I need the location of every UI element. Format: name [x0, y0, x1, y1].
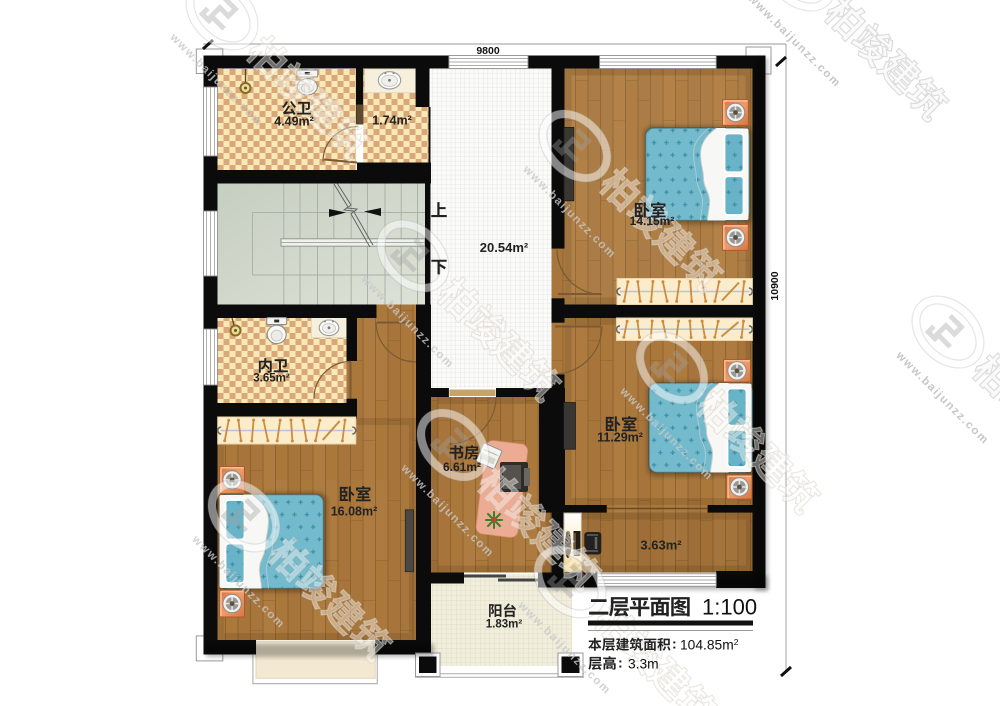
svg-text:20.54m²: 20.54m² — [480, 240, 529, 255]
svg-text:16.08m²: 16.08m² — [331, 505, 378, 519]
svg-text:1.74m²: 1.74m² — [372, 114, 412, 128]
svg-text:1:100: 1:100 — [702, 595, 757, 620]
svg-text:4.49m²: 4.49m² — [274, 115, 314, 129]
svg-text:14.15m²: 14.15m² — [630, 214, 675, 228]
svg-text:6.61m²: 6.61m² — [443, 460, 481, 474]
svg-text:104.85m2: 104.85m2 — [680, 637, 739, 653]
svg-text:10900: 10900 — [769, 271, 781, 300]
svg-text:3.3m: 3.3m — [628, 657, 659, 672]
svg-text:1.83m²: 1.83m² — [486, 619, 523, 631]
svg-text:11.29m²: 11.29m² — [597, 431, 643, 445]
svg-text:3.65m²: 3.65m² — [253, 373, 290, 385]
svg-text::: : — [618, 655, 623, 671]
svg-text::: : — [672, 636, 677, 652]
svg-text:3.63m²: 3.63m² — [640, 538, 682, 553]
